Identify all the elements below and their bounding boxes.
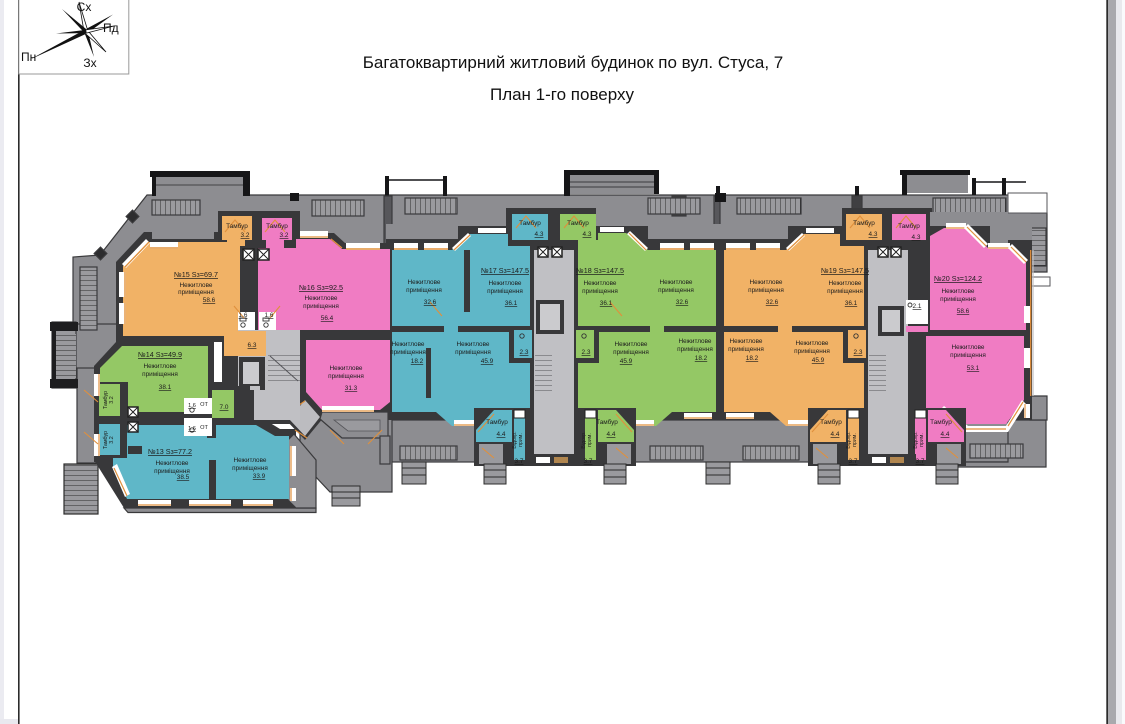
svg-text:4.3: 4.3: [535, 231, 544, 238]
svg-text:Нежитлове: Нежитлове: [730, 338, 763, 345]
svg-text:приміщення: приміщення: [827, 287, 863, 295]
svg-text:58.6: 58.6: [203, 297, 216, 304]
svg-text:4.4: 4.4: [607, 431, 616, 438]
svg-text:Тамбур: Тамбур: [820, 418, 842, 426]
svg-text:приміщення: приміщення: [658, 286, 694, 294]
svg-text:приміщення: приміщення: [728, 345, 764, 353]
svg-text:6.3: 6.3: [248, 342, 257, 349]
svg-text:1.6: 1.6: [188, 426, 196, 432]
svg-text:58.6: 58.6: [957, 308, 970, 315]
svg-text:№20 Sз=124.2: №20 Sз=124.2: [934, 274, 982, 283]
svg-text:№18 Sз=147.5: №18 Sз=147.5: [576, 266, 624, 275]
svg-text:прим.: прим.: [518, 433, 524, 447]
svg-text:приміщення: приміщення: [582, 287, 618, 295]
svg-text:53.1: 53.1: [967, 365, 980, 372]
svg-text:3.2: 3.2: [280, 232, 289, 239]
svg-text:32.6: 32.6: [424, 299, 437, 306]
svg-text:Тамбур: Тамбур: [853, 219, 875, 227]
svg-text:приміщення: приміщення: [677, 345, 713, 353]
svg-text:№17 Sз=147.5: №17 Sз=147.5: [481, 266, 529, 275]
svg-text:36.1: 36.1: [505, 300, 518, 307]
svg-text:38.1: 38.1: [159, 384, 172, 391]
svg-text:прим.: прим.: [919, 433, 925, 447]
svg-text:Тамбур: Тамбур: [486, 418, 508, 426]
svg-text:Тамбур: Тамбур: [226, 222, 248, 230]
svg-text:Нежитлове: Нежитлове: [408, 279, 441, 286]
svg-text:32.6: 32.6: [766, 299, 779, 306]
svg-text:45.9: 45.9: [481, 358, 494, 365]
svg-text:Зх: Зх: [83, 56, 96, 70]
svg-text:Нежитлове: Нежитлове: [660, 279, 693, 286]
svg-text:ОТ: ОТ: [200, 425, 208, 431]
svg-text:приміщення: приміщення: [406, 286, 442, 294]
svg-text:Пд: Пд: [103, 21, 119, 35]
svg-text:Нежитлове: Нежитлове: [952, 344, 985, 351]
svg-text:2.3: 2.3: [520, 349, 529, 356]
svg-text:Нежитлове: Нежитлове: [144, 363, 177, 370]
svg-text:приміщення: приміщення: [748, 286, 784, 294]
svg-text:Тамбур: Тамбур: [567, 219, 589, 227]
svg-text:Нежитлове: Нежитлове: [457, 341, 490, 348]
svg-text:3.2: 3.2: [241, 232, 250, 239]
svg-text:№15 Sз=69.7: №15 Sз=69.7: [174, 270, 218, 279]
svg-text:приміщення: приміщення: [940, 295, 976, 303]
svg-text:Нежитлове: Нежитлове: [180, 282, 213, 289]
svg-text:Нежитлове: Нежитлове: [942, 288, 975, 295]
svg-text:4.3: 4.3: [912, 234, 921, 241]
svg-text:Нежитлове: Нежитлове: [234, 457, 267, 464]
svg-text:Нежитлове: Нежитлове: [489, 280, 522, 287]
svg-text:4.4: 4.4: [941, 431, 950, 438]
svg-text:Нежитлове: Нежитлове: [615, 341, 648, 348]
svg-text:приміщення: приміщення: [487, 287, 523, 295]
svg-text:18.2: 18.2: [695, 355, 708, 362]
svg-text:приміщення: приміщення: [613, 348, 649, 356]
svg-text:приміщення: приміщення: [390, 348, 426, 356]
svg-text:приміщення: приміщення: [303, 302, 339, 310]
svg-text:3.2: 3.2: [109, 436, 115, 444]
svg-text:№16 Sз=92.5: №16 Sз=92.5: [299, 283, 343, 292]
svg-text:Тамбур: Тамбур: [898, 222, 920, 230]
svg-text:3.7: 3.7: [515, 458, 524, 465]
svg-text:56.4: 56.4: [321, 315, 334, 322]
svg-text:Багатоквартирний житловий буди: Багатоквартирний житловий будинок по вул…: [363, 53, 783, 72]
svg-text:Нежитлове: Нежитлове: [330, 365, 363, 372]
svg-text:1.6: 1.6: [188, 403, 196, 409]
svg-text:приміщення: приміщення: [328, 372, 364, 380]
svg-text:1.6: 1.6: [265, 312, 274, 319]
svg-text:приміщення: приміщення: [950, 351, 986, 359]
svg-text:Тамбур: Тамбур: [266, 222, 288, 230]
svg-text:31.3: 31.3: [345, 385, 358, 392]
svg-text:приміщення: приміщення: [178, 288, 214, 296]
svg-text:приміщення: приміщення: [142, 370, 178, 378]
svg-text:4.4: 4.4: [497, 431, 506, 438]
svg-text:33.9: 33.9: [253, 473, 266, 480]
svg-text:18.2: 18.2: [411, 358, 424, 365]
svg-text:ОТ: ОТ: [200, 402, 208, 408]
svg-text:прим.: прим.: [587, 433, 593, 447]
svg-text:3.7: 3.7: [584, 458, 593, 465]
svg-text:45.9: 45.9: [620, 358, 633, 365]
svg-text:45.9: 45.9: [812, 357, 825, 364]
svg-text:36.1: 36.1: [845, 300, 858, 307]
svg-text:36.1: 36.1: [600, 300, 613, 307]
svg-text:2.3: 2.3: [582, 349, 591, 356]
svg-text:приміщення: приміщення: [794, 347, 830, 355]
svg-text:Нежитлове: Нежитлове: [796, 340, 829, 347]
svg-text:1.6: 1.6: [239, 312, 248, 319]
svg-text:№13 Sз=77.2: №13 Sз=77.2: [148, 447, 192, 456]
svg-text:Нежитлове: Нежитлове: [750, 279, 783, 286]
svg-text:приміщення: приміщення: [455, 348, 491, 356]
svg-text:Нежитлове: Нежитлове: [829, 280, 862, 287]
svg-text:3.7: 3.7: [849, 458, 858, 465]
svg-text:Тамбур: Тамбур: [519, 219, 541, 227]
svg-text:Нежитлове: Нежитлове: [305, 295, 338, 302]
svg-text:4.3: 4.3: [583, 231, 592, 238]
svg-text:Нежитлове: Нежитлове: [392, 341, 425, 348]
svg-text:3.2: 3.2: [109, 396, 115, 404]
svg-text:18.2: 18.2: [746, 355, 759, 362]
svg-text:Тамбур: Тамбур: [596, 418, 618, 426]
svg-text:32.6: 32.6: [676, 299, 689, 306]
svg-text:Нежитлове: Нежитлове: [584, 280, 617, 287]
svg-text:38.5: 38.5: [177, 474, 190, 481]
svg-text:2.3: 2.3: [854, 349, 863, 356]
svg-text:План 1-го поверху: План 1-го поверху: [490, 85, 635, 104]
svg-text:приміщення: приміщення: [232, 464, 268, 472]
svg-text:№14 Sз=49.9: №14 Sз=49.9: [138, 350, 182, 359]
svg-text:Пн: Пн: [21, 50, 36, 64]
svg-text:4.4: 4.4: [831, 431, 840, 438]
svg-text:3.7: 3.7: [916, 458, 925, 465]
svg-text:Нежитлове: Нежитлове: [679, 338, 712, 345]
svg-text:Тамбур: Тамбур: [930, 418, 952, 426]
svg-text:Нежитлове: Нежитлове: [156, 460, 189, 467]
svg-text:Сх: Сх: [77, 0, 92, 14]
svg-text:7.0: 7.0: [220, 404, 229, 411]
svg-text:4.3: 4.3: [869, 231, 878, 238]
svg-text:2.1: 2.1: [913, 303, 922, 310]
svg-text:прим.: прим.: [852, 433, 858, 447]
svg-text:№19 Sз=147.5: №19 Sз=147.5: [821, 266, 869, 275]
